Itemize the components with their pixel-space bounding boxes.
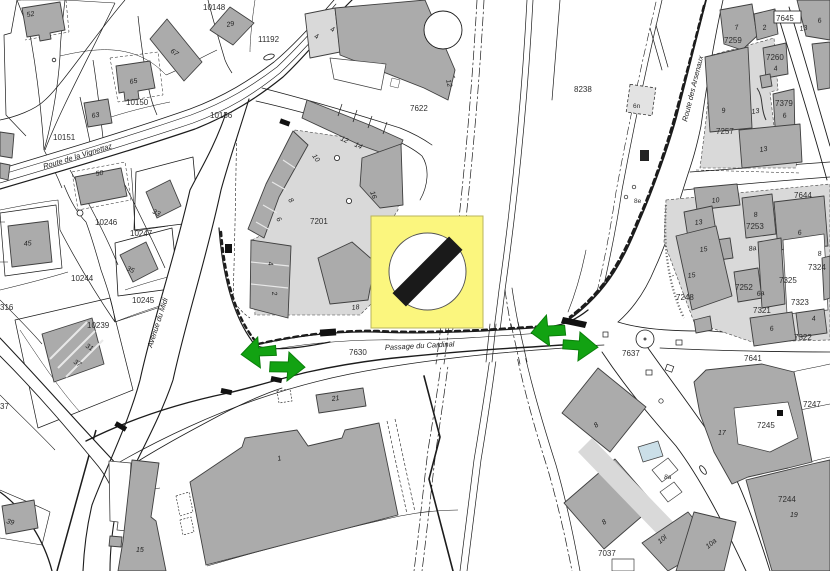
svg-text:8a: 8a	[748, 245, 757, 253]
svg-text:316: 316	[0, 303, 14, 312]
svg-text:7622: 7622	[410, 104, 428, 113]
svg-text:7257: 7257	[716, 127, 734, 136]
svg-text:13: 13	[751, 108, 760, 116]
svg-text:7324: 7324	[808, 263, 826, 272]
svg-text:7248: 7248	[676, 293, 694, 302]
svg-text:45: 45	[23, 240, 32, 248]
svg-text:15: 15	[699, 246, 708, 254]
svg-text:7641: 7641	[744, 354, 762, 363]
svg-text:7325: 7325	[779, 276, 797, 285]
svg-text:50: 50	[95, 170, 104, 178]
svg-text:7644: 7644	[794, 191, 812, 200]
svg-text:63: 63	[91, 112, 100, 120]
svg-text:10244: 10244	[71, 274, 94, 283]
svg-text:8238: 8238	[574, 85, 592, 94]
svg-text:13: 13	[799, 25, 808, 33]
svg-text:7379: 7379	[775, 99, 793, 108]
svg-text:7252: 7252	[735, 283, 753, 292]
svg-text:11192: 11192	[258, 35, 280, 44]
svg-text:7201: 7201	[310, 217, 328, 226]
svg-text:7247: 7247	[803, 400, 821, 409]
svg-text:15: 15	[687, 272, 696, 280]
svg-text:8e: 8e	[634, 198, 642, 205]
svg-text:52: 52	[26, 11, 35, 19]
svg-text:7637: 7637	[622, 349, 640, 358]
svg-text:7323: 7323	[791, 298, 809, 307]
svg-text:37: 37	[0, 402, 9, 411]
svg-text:7321: 7321	[753, 306, 771, 315]
svg-text:7244: 7244	[778, 495, 796, 504]
svg-text:7259: 7259	[724, 36, 742, 45]
svg-text:8a: 8a	[664, 474, 672, 481]
svg-text:10: 10	[711, 197, 720, 205]
svg-text:18: 18	[351, 304, 360, 312]
svg-text:13: 13	[694, 219, 703, 227]
svg-text:7260: 7260	[766, 53, 784, 62]
svg-text:10245: 10245	[132, 296, 155, 305]
svg-text:65: 65	[129, 78, 138, 86]
svg-text:7322: 7322	[794, 333, 812, 342]
svg-text:10151: 10151	[53, 133, 76, 142]
svg-text:7245: 7245	[757, 421, 775, 430]
svg-text:10239: 10239	[87, 321, 110, 330]
svg-text:10246: 10246	[95, 218, 118, 227]
svg-text:15: 15	[136, 547, 144, 554]
svg-text:21: 21	[330, 395, 340, 403]
svg-text:10156: 10156	[210, 111, 233, 120]
svg-text:7037: 7037	[598, 549, 616, 558]
svg-text:13: 13	[759, 146, 768, 154]
svg-text:19: 19	[790, 512, 798, 519]
svg-text:6n: 6n	[633, 103, 641, 110]
svg-text:7645: 7645	[776, 14, 794, 23]
svg-text:17: 17	[718, 430, 727, 437]
svg-text:10150: 10150	[126, 98, 149, 107]
svg-text:10247: 10247	[130, 229, 153, 238]
svg-text:7253: 7253	[746, 222, 764, 231]
svg-text:10148: 10148	[203, 3, 226, 12]
svg-text:6a: 6a	[756, 290, 765, 298]
svg-text:7630: 7630	[349, 348, 367, 357]
